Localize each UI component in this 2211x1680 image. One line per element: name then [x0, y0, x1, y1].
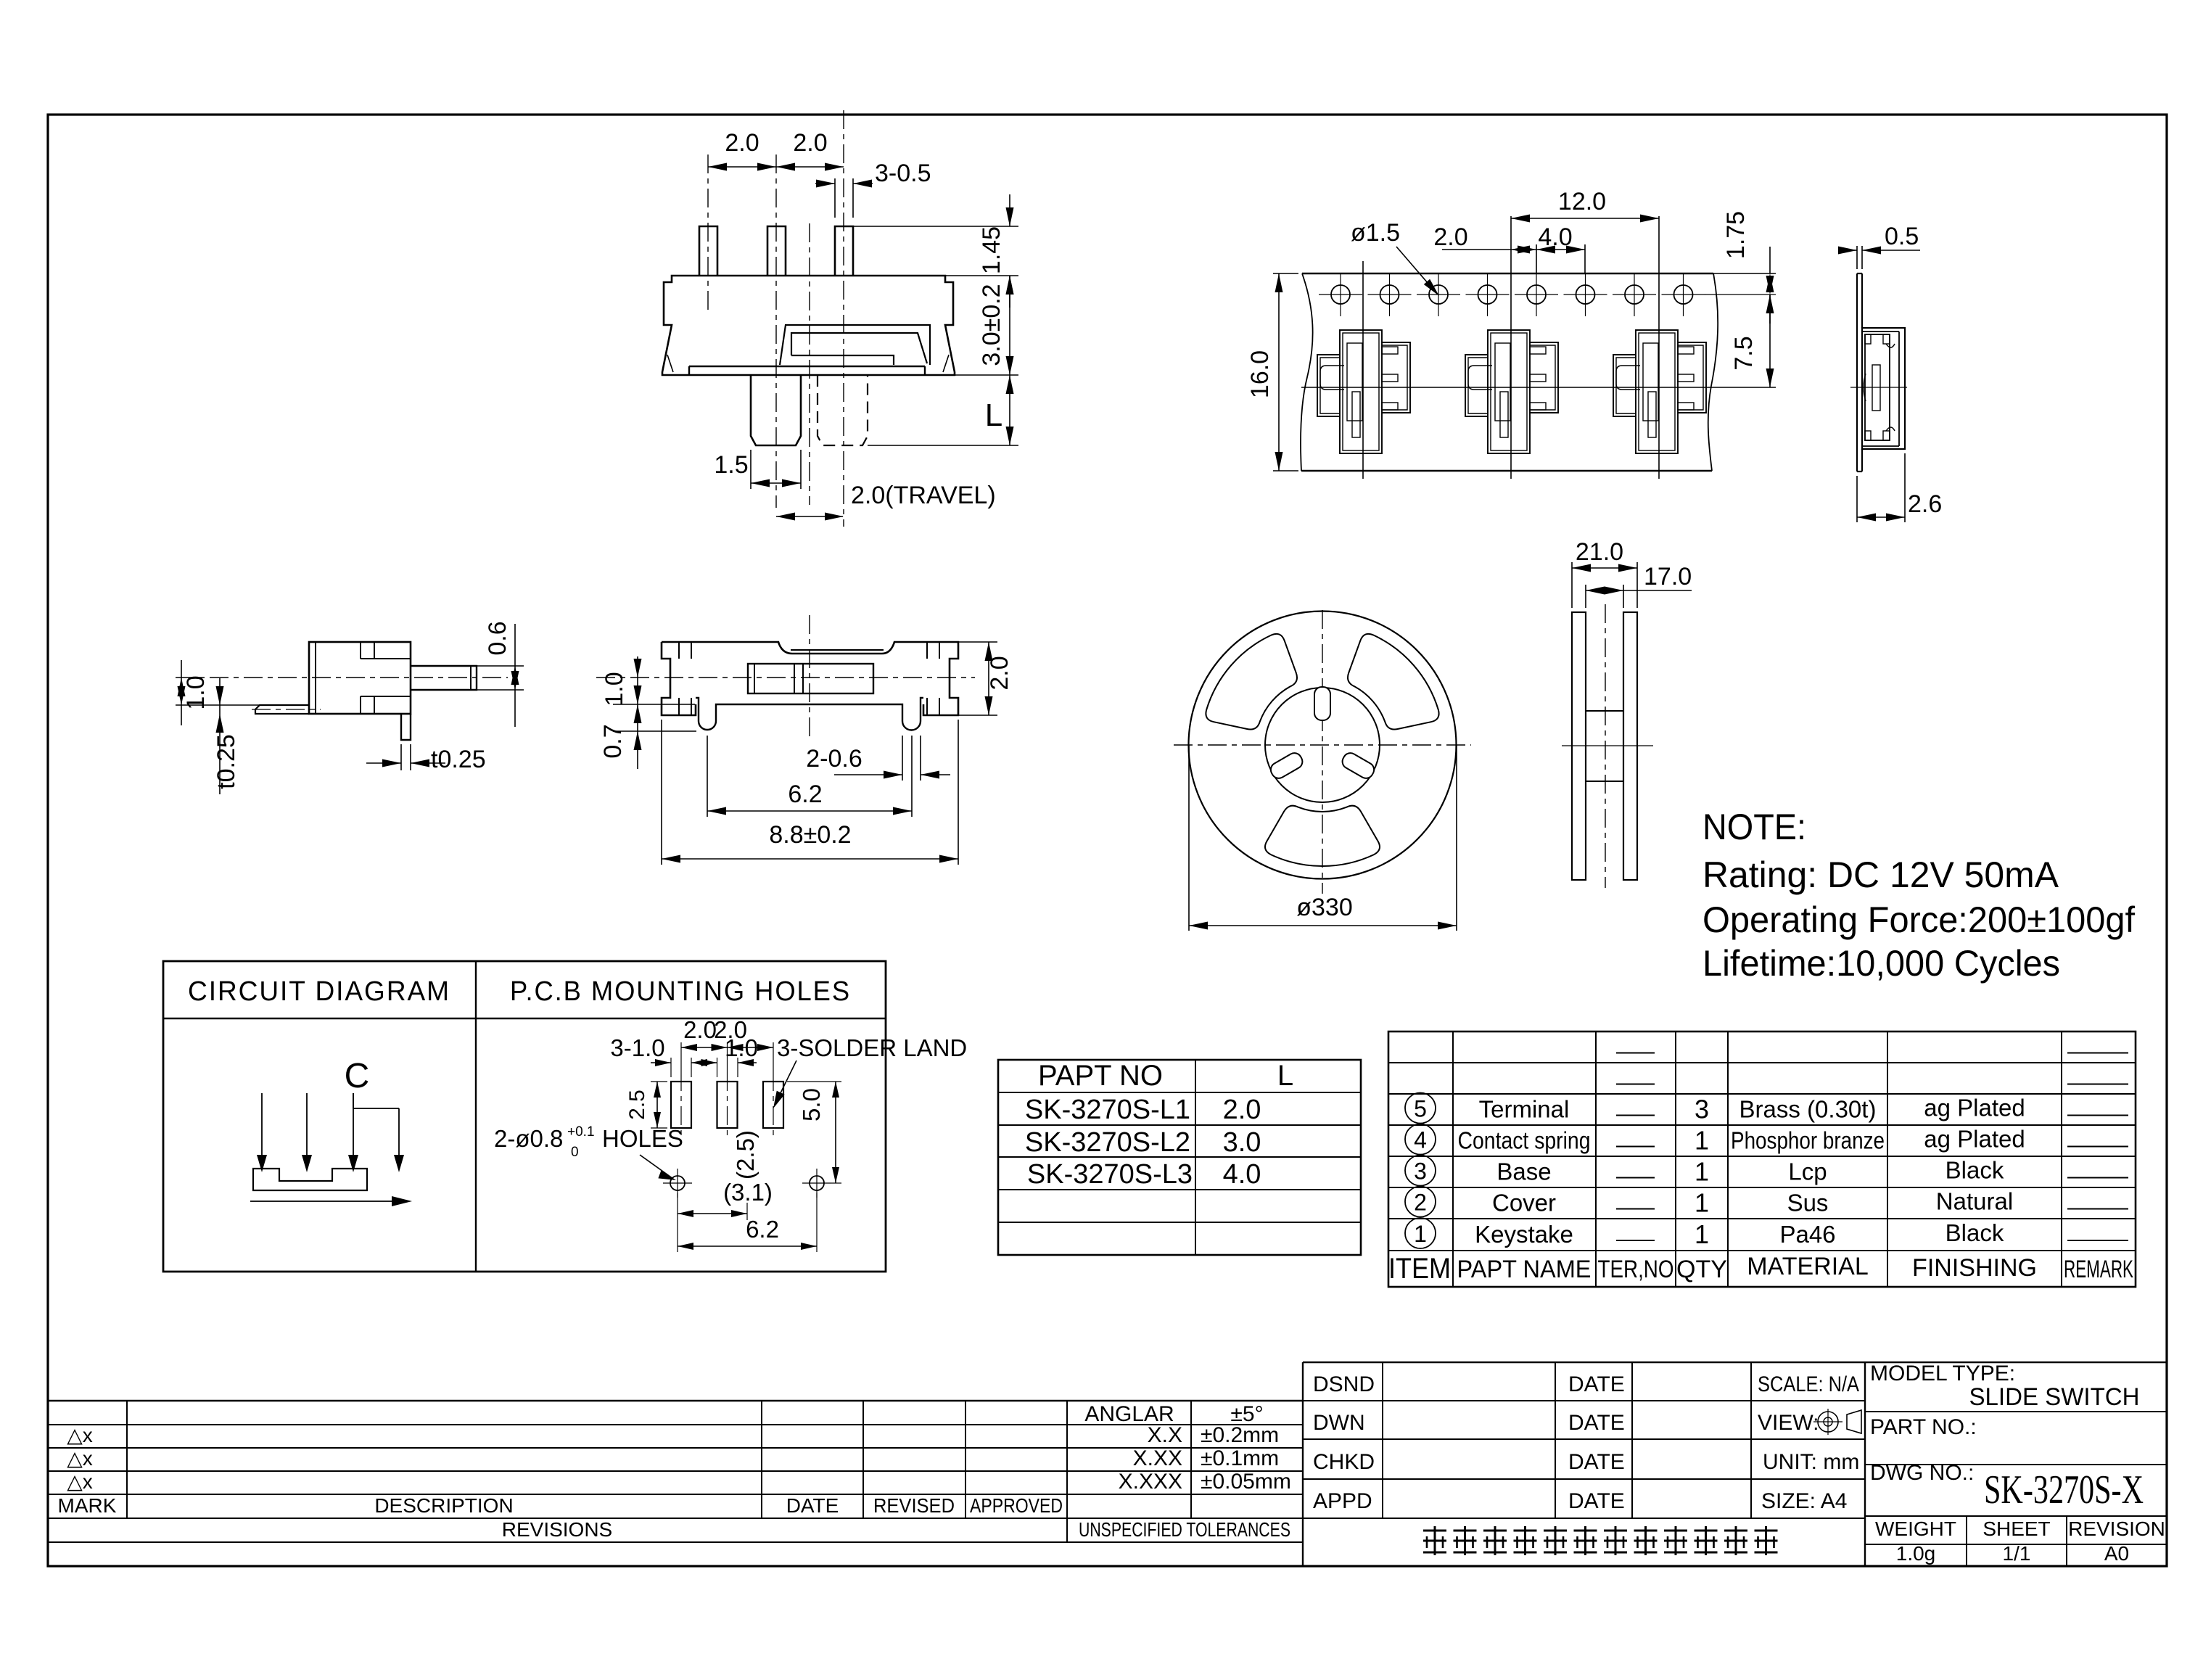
svg-text:1: 1 [1695, 1157, 1709, 1187]
svg-text:Operating Force:200±100gf: Operating Force:200±100gf [1702, 899, 2135, 940]
svg-text:(3.1): (3.1) [723, 1179, 773, 1206]
svg-text:FINISHING: FINISHING [1912, 1254, 2037, 1282]
svg-text:X.XX: X.XX [1133, 1446, 1182, 1470]
svg-text:DWN: DWN [1313, 1411, 1365, 1435]
svg-text:APPD: APPD [1313, 1489, 1372, 1513]
svg-text:2.0: 2.0 [793, 129, 827, 157]
svg-text:REVISED: REVISED [873, 1494, 955, 1517]
svg-text:2.0: 2.0 [725, 129, 759, 157]
svg-text:DATE: DATE [1568, 1372, 1625, 1396]
svg-text:PAPT NO: PAPT NO [1038, 1060, 1163, 1092]
svg-text:MODEL TYPE:: MODEL TYPE: [1870, 1362, 2015, 1385]
svg-text:3: 3 [1414, 1158, 1427, 1185]
svg-text:P.C.B MOUNTING HOLES: P.C.B MOUNTING HOLES [510, 976, 851, 1007]
svg-text:5.0: 5.0 [798, 1088, 825, 1121]
svg-text:5: 5 [1414, 1096, 1427, 1122]
svg-text:1.0g: 1.0g [1896, 1542, 1936, 1565]
svg-text:1.0: 1.0 [601, 672, 628, 706]
svg-text:3: 3 [1695, 1095, 1709, 1124]
svg-text:t0.25: t0.25 [431, 746, 486, 773]
svg-text:CIRCUIT DIAGRAM: CIRCUIT DIAGRAM [188, 976, 450, 1007]
svg-text:Phosphor branze: Phosphor branze [1731, 1127, 1885, 1154]
svg-text:3.0±0.2: 3.0±0.2 [978, 284, 1005, 366]
svg-text:Base: Base [1496, 1158, 1551, 1185]
svg-text:21.0: 21.0 [1576, 538, 1623, 566]
svg-text:REMARK: REMARK [2064, 1256, 2133, 1283]
svg-text:ø330: ø330 [1296, 894, 1353, 921]
svg-text:±0.1mm: ±0.1mm [1201, 1446, 1279, 1470]
svg-text:L: L [985, 398, 1002, 433]
svg-text:Brass (0.30t): Brass (0.30t) [1739, 1096, 1877, 1123]
svg-text:UNSPECIFIED TOLERANCES: UNSPECIFIED TOLERANCES [1079, 1518, 1290, 1541]
svg-text:SIZE: A4: SIZE: A4 [1761, 1489, 1847, 1513]
svg-text:Pa46: Pa46 [1779, 1221, 1835, 1248]
svg-text:SK-3270S-L3: SK-3270S-L3 [1027, 1159, 1193, 1190]
svg-text:1: 1 [1695, 1126, 1709, 1156]
svg-text:±0.05mm: ±0.05mm [1201, 1470, 1291, 1494]
svg-text:Terminal: Terminal [1479, 1096, 1570, 1123]
svg-text:WEIGHT: WEIGHT [1875, 1518, 1956, 1540]
svg-text:PART NO.:: PART NO.: [1870, 1415, 1977, 1439]
svg-text:REVISION: REVISION [2068, 1518, 2165, 1540]
svg-text:1: 1 [1414, 1221, 1427, 1247]
svg-text:2.0: 2.0 [1223, 1095, 1261, 1125]
svg-text:8.8±0.2: 8.8±0.2 [769, 821, 851, 849]
svg-text:4.0: 4.0 [1223, 1159, 1261, 1190]
svg-text:Contact spring: Contact spring [1458, 1127, 1591, 1154]
svg-text:2-ø0.8: 2-ø0.8 [494, 1125, 563, 1152]
svg-text:X.XXX: X.XXX [1119, 1470, 1182, 1494]
svg-text:1: 1 [1695, 1188, 1709, 1218]
svg-text:DATE: DATE [1568, 1489, 1625, 1513]
svg-text:2.0: 2.0 [683, 1016, 717, 1043]
svg-text:Lifetime:10,000 Cycles: Lifetime:10,000 Cycles [1702, 943, 2060, 984]
svg-text:3-1.0: 3-1.0 [610, 1034, 664, 1061]
svg-text:Black: Black [1946, 1219, 2004, 1246]
svg-text:1.0: 1.0 [725, 1034, 758, 1061]
svg-text:ø1.5: ø1.5 [1351, 219, 1400, 247]
svg-text:QTY: QTY [1676, 1256, 1727, 1283]
svg-text:UNIT: mm: UNIT: mm [1763, 1450, 1859, 1474]
svg-text:Sus: Sus [1787, 1190, 1829, 1216]
svg-text:Black: Black [1946, 1157, 2004, 1184]
svg-text:6.2: 6.2 [788, 781, 822, 808]
svg-text:SLIDE SWITCH: SLIDE SWITCH [1969, 1383, 2140, 1411]
svg-text:1/1: 1/1 [2003, 1542, 2031, 1565]
svg-text:HOLES: HOLES [602, 1125, 683, 1152]
svg-text:0: 0 [571, 1145, 579, 1160]
svg-text:Rating: DC 12V 50mA: Rating: DC 12V 50mA [1702, 855, 2059, 895]
svg-text:DATE: DATE [1568, 1450, 1625, 1474]
svg-text:DWG NO.:: DWG NO.: [1870, 1461, 1974, 1485]
svg-text:1.0: 1.0 [182, 675, 210, 709]
svg-text:APPROVED: APPROVED [970, 1494, 1063, 1517]
svg-text:Lcp: Lcp [1788, 1158, 1827, 1185]
svg-text:A0: A0 [2104, 1542, 2129, 1565]
svg-text:2-0.6: 2-0.6 [806, 745, 862, 773]
svg-text:SCALE: N/A: SCALE: N/A [1758, 1372, 1859, 1396]
svg-text:L: L [1277, 1060, 1293, 1092]
svg-text:0.6: 0.6 [484, 621, 511, 655]
svg-text:ag Plated: ag Plated [1924, 1095, 2025, 1121]
svg-text:DESCRIPTION: DESCRIPTION [374, 1494, 513, 1517]
svg-text:△x: △x [67, 1470, 93, 1493]
svg-text:Cover: Cover [1492, 1190, 1556, 1216]
svg-text:2.0: 2.0 [986, 656, 1013, 690]
svg-text:DATE: DATE [786, 1494, 839, 1517]
svg-text:TER,NO: TER,NO [1598, 1256, 1674, 1283]
svg-text:PAPT NAME: PAPT NAME [1457, 1256, 1592, 1283]
svg-text:CHKD: CHKD [1313, 1450, 1375, 1474]
svg-text:17.0: 17.0 [1644, 563, 1692, 590]
svg-text:t0.25: t0.25 [213, 734, 240, 789]
svg-text:C: C [345, 1057, 370, 1095]
svg-text:ITEM: ITEM [1388, 1253, 1451, 1285]
svg-text:(2.5): (2.5) [732, 1130, 759, 1179]
svg-text:VIEW:: VIEW: [1758, 1411, 1819, 1435]
svg-text:△x: △x [67, 1424, 93, 1446]
svg-text:6.2: 6.2 [746, 1216, 779, 1243]
svg-text:MATERIAL: MATERIAL [1747, 1253, 1869, 1280]
svg-text:2.5: 2.5 [625, 1090, 649, 1120]
svg-text:MARK: MARK [58, 1494, 117, 1517]
svg-text:2.6: 2.6 [1908, 490, 1942, 518]
svg-text:+0.1: +0.1 [567, 1124, 595, 1140]
svg-text:Natural: Natural [1936, 1188, 2013, 1215]
svg-text:SK-3270S-L1: SK-3270S-L1 [1025, 1095, 1190, 1125]
svg-text:±0.2mm: ±0.2mm [1201, 1423, 1279, 1447]
svg-text:2.0(TRAVEL): 2.0(TRAVEL) [851, 482, 996, 509]
svg-text:1: 1 [1695, 1219, 1709, 1249]
svg-text:SK-3270S-X: SK-3270S-X [1984, 1467, 2144, 1512]
svg-text:2.0: 2.0 [1433, 223, 1467, 251]
svg-text:1.75: 1.75 [1722, 211, 1750, 259]
svg-text:0.5: 0.5 [1885, 223, 1919, 250]
svg-text:16.0: 16.0 [1246, 350, 1274, 398]
svg-text:NOTE:: NOTE: [1702, 807, 1806, 847]
svg-text:1.5: 1.5 [714, 451, 748, 479]
svg-text:SHEET: SHEET [1983, 1518, 2050, 1540]
svg-text:X.X: X.X [1148, 1423, 1182, 1447]
svg-text:REVISIONS: REVISIONS [502, 1518, 612, 1541]
svg-text:0.7: 0.7 [599, 724, 627, 758]
svg-text:4: 4 [1414, 1127, 1427, 1153]
svg-text:1.45: 1.45 [978, 226, 1005, 274]
svg-text:DATE: DATE [1568, 1411, 1625, 1435]
svg-text:DSND: DSND [1313, 1372, 1375, 1396]
svg-text:ag Plated: ag Plated [1924, 1126, 2025, 1153]
svg-text:7.5: 7.5 [1730, 336, 1758, 370]
svg-text:3-SOLDER LAND: 3-SOLDER LAND [777, 1034, 967, 1061]
svg-text:4.0: 4.0 [1538, 223, 1572, 251]
svg-text:3-0.5: 3-0.5 [875, 160, 931, 187]
svg-text:3.0: 3.0 [1223, 1127, 1261, 1158]
svg-text:SK-3270S-L2: SK-3270S-L2 [1025, 1127, 1190, 1158]
svg-text:Keystake: Keystake [1475, 1221, 1573, 1248]
svg-text:2: 2 [1414, 1190, 1427, 1216]
svg-text:12.0: 12.0 [1558, 188, 1606, 215]
svg-text:△x: △x [67, 1447, 93, 1470]
